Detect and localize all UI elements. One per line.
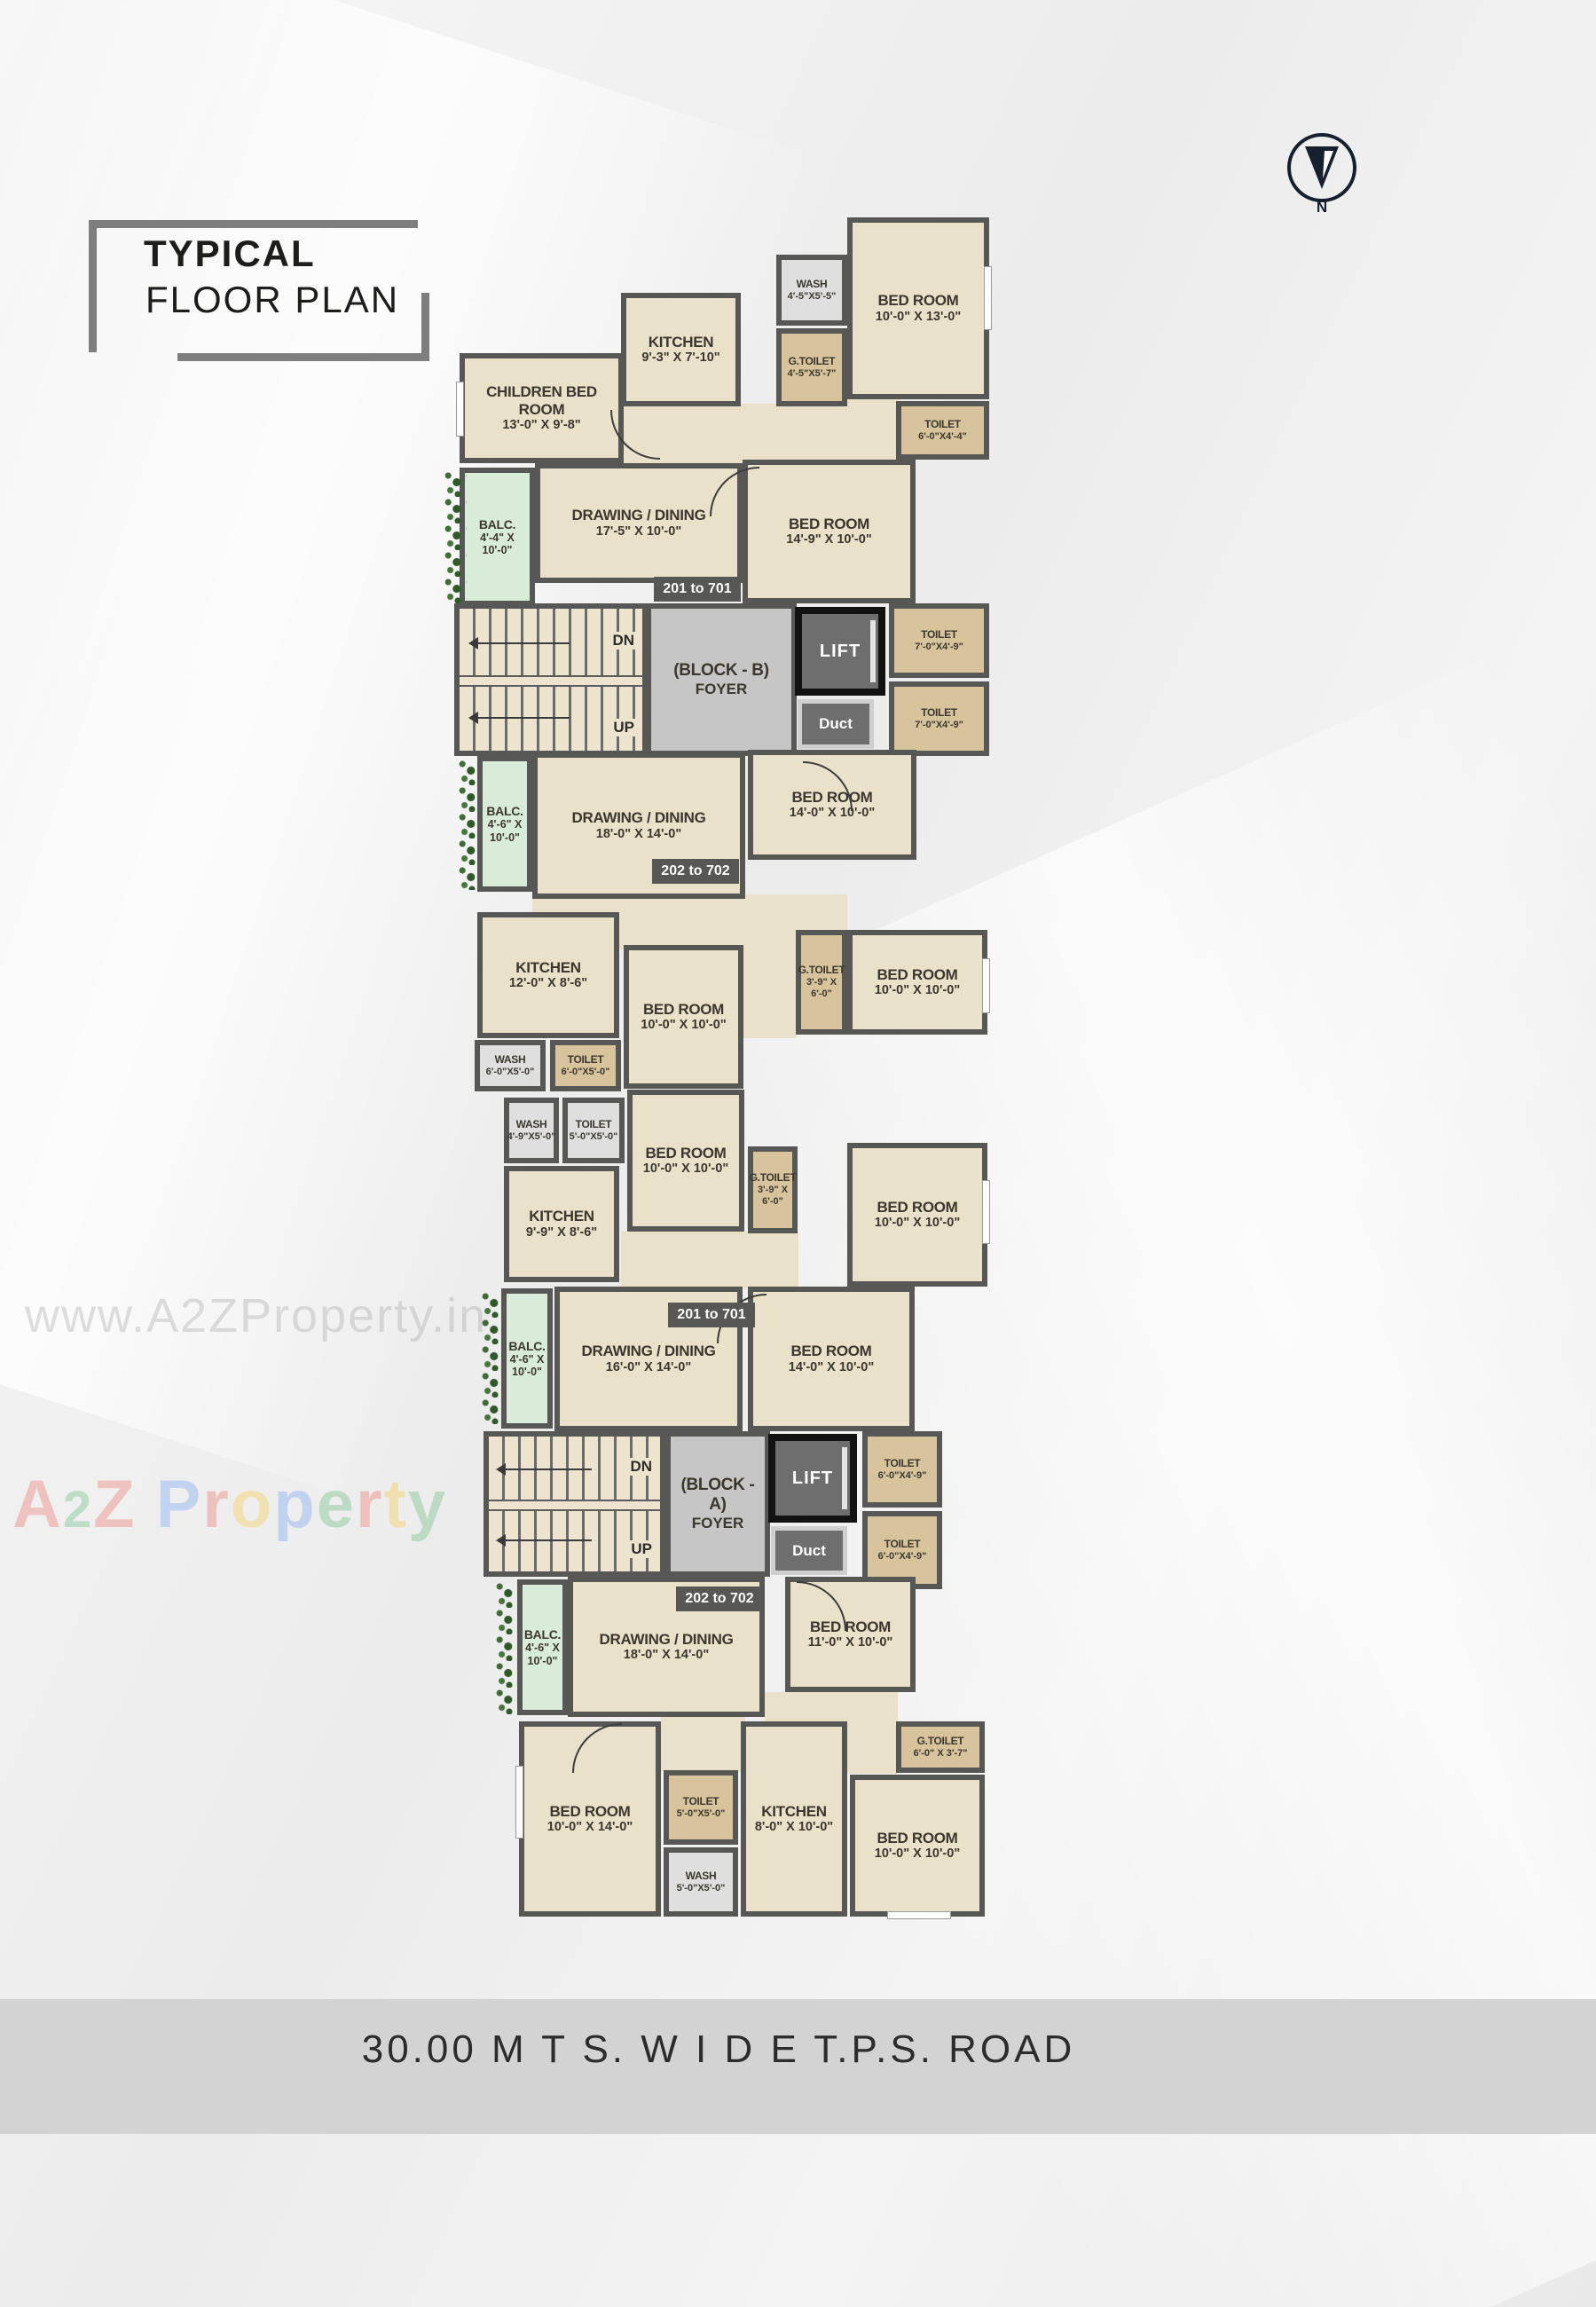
window-mark <box>982 1180 990 1244</box>
room-toilet-a1: TOILET5'-0"X5'-0" <box>562 1098 625 1163</box>
room-dims: 13'-0" X 9'-8" <box>465 418 618 433</box>
room-dims: 6'-0" X 3'-7" <box>914 1748 968 1760</box>
staircase-block-a: DN UP <box>484 1431 665 1577</box>
block-label: (BLOCK - A) <box>671 1476 765 1515</box>
room-dims: 4'-6" X 10'-0" <box>483 818 527 844</box>
road-band: 30.00 M T S. W I D E T.P.S. ROAD <box>0 1999 1596 2134</box>
room-name: TOILET <box>878 1458 927 1470</box>
room-name: TOILET <box>915 629 963 642</box>
room-dims: 10'-0" X 10'-0" <box>875 983 960 998</box>
stair-landing <box>460 675 642 687</box>
room-gtoilet-a2: G.TOILET6'-0" X 3'-7" <box>896 1721 985 1773</box>
lift-block-b: LIFT <box>795 607 885 696</box>
room-name: KITCHEN <box>526 1208 597 1225</box>
logo-letter: r <box>356 1466 384 1543</box>
room-name: TOILET <box>677 1796 726 1808</box>
room-dims: 12'-0" X 8'-6" <box>509 976 587 991</box>
room-name: BED ROOM <box>875 1199 960 1216</box>
room-name: BED ROOM <box>643 1145 728 1162</box>
window-mark <box>982 958 990 1013</box>
lift-label: LIFT <box>792 1468 833 1489</box>
window-mark <box>515 1766 523 1839</box>
hall-floor <box>661 1717 745 1772</box>
room-name: BED ROOM <box>786 516 871 533</box>
lift-block-a: LIFT <box>768 1434 857 1523</box>
room-name: BED ROOM <box>876 292 961 310</box>
hall-floor <box>621 1232 798 1288</box>
room-drawing-dining-b1: DRAWING / DINING17'-5" X 10'-0" <box>535 463 743 583</box>
logo-letter: P <box>156 1466 203 1543</box>
room-dims: 11'-0" X 10'-0" <box>808 1635 893 1650</box>
unit-range: 201 to 701 <box>677 1307 745 1323</box>
room-dims: 9'-9" X 8'-6" <box>526 1225 597 1240</box>
logo-letter: y <box>408 1466 447 1543</box>
duct-block-a: Duct <box>771 1526 847 1575</box>
room-dims: 4'-6" X 10'-0" <box>507 1353 547 1379</box>
room-dims: 3'-9" X 6'-0" <box>750 1185 797 1207</box>
room-name: DRAWING / DINING <box>581 1342 715 1360</box>
room-kitchen-a1: KITCHEN9'-9" X 8'-6" <box>504 1166 619 1282</box>
room-balcony-b2: BALC.4'-6" X 10'-0" <box>477 756 532 892</box>
lift-label: LIFT <box>820 642 861 662</box>
room-dims: 4'-5"X5'-5" <box>788 291 837 303</box>
room-name: BED ROOM <box>641 1001 726 1019</box>
room-name: WASH <box>677 1870 726 1883</box>
room-dims: 6'-0"X5'-0" <box>562 1067 610 1078</box>
page-title-line2: FLOOR PLAN <box>145 279 399 321</box>
room-dims: 4'-4" X 10'-0" <box>475 531 521 557</box>
room-name: KITCHEN <box>641 334 719 351</box>
svg-text:N: N <box>1317 199 1327 216</box>
room-name: TOILET <box>570 1119 618 1131</box>
staircase-block-b: DN UP <box>454 603 648 756</box>
stairs-down-label: DN <box>627 1458 655 1476</box>
watermark-logo: A2ZProperty <box>12 1466 447 1543</box>
logo-letter: Z <box>93 1466 136 1543</box>
room-dims: 17'-5" X 10'-0" <box>571 524 705 539</box>
room-name: BALC. <box>475 517 521 531</box>
plants <box>442 470 467 603</box>
stair-landing <box>489 1500 660 1511</box>
foyer-label: FOYER <box>673 681 769 698</box>
unit-range: 202 to 702 <box>661 863 729 879</box>
room-name: WASH <box>507 1119 556 1131</box>
room-name: G.TOILET <box>788 356 837 368</box>
unit-label-b-upper: 201 to 701 <box>654 577 741 602</box>
room-name: CHILDREN BED ROOM <box>465 383 618 418</box>
room-dims: 10'-0" X 10'-0" <box>875 1216 960 1231</box>
room-name: TOILET <box>915 707 963 720</box>
room-name: BED ROOM <box>547 1803 633 1821</box>
room-dims: 6'-0"X4'-9" <box>878 1551 927 1563</box>
room-bedroom-b2-right: BED ROOM10'-0" X 10'-0" <box>847 930 987 1035</box>
room-children-bedroom-b1: CHILDREN BED ROOM13'-0" X 9'-8" <box>460 353 624 463</box>
room-name: BALC. <box>483 804 527 818</box>
stairs-up-label: UP <box>610 719 637 736</box>
room-wash-b2: WASH6'-0"X5'-0" <box>475 1040 546 1091</box>
room-name: DRAWING / DINING <box>571 507 705 524</box>
room-dims: 8'-0" X 10'-0" <box>755 1820 833 1835</box>
room-balcony-a1: BALC.4'-6" X 10'-0" <box>501 1288 553 1429</box>
unit-label-a-lower: 202 to 702 <box>676 1587 763 1611</box>
room-dims: 5'-0"X5'-0" <box>677 1883 726 1894</box>
logo-letter: e <box>317 1466 356 1543</box>
room-wash-a2: WASH5'-0"X5'-0" <box>664 1847 738 1917</box>
room-bedroom-b1-top: BED ROOM10'-0" X 13'-0" <box>847 217 989 399</box>
logo-letter: o <box>231 1466 273 1543</box>
room-dims: 14'-0" X 10'-0" <box>789 1360 874 1375</box>
room-dims: 7'-0"X4'-9" <box>915 720 963 731</box>
unit-range: 201 to 701 <box>663 581 731 597</box>
room-dims: 10'-0" X 10'-0" <box>641 1018 726 1033</box>
room-dims: 18'-0" X 14'-0" <box>599 1648 733 1663</box>
room-toilet-core-a-1: TOILET6'-0"X4'-9" <box>862 1431 942 1508</box>
stair-arrow <box>478 642 570 644</box>
room-name: G.TOILET <box>750 1172 797 1185</box>
logo-letter: t <box>384 1466 408 1543</box>
window-mark <box>887 1911 951 1919</box>
room-name: BALC. <box>523 1627 562 1642</box>
hall-floor <box>847 399 899 463</box>
room-dims: 9'-3" X 7'-10" <box>641 350 719 366</box>
duct-label: Duct <box>792 1542 826 1560</box>
room-dims: 16'-0" X 14'-0" <box>581 1360 715 1375</box>
road-label: 30.00 M T S. W I D E T.P.S. ROAD <box>231 2027 1207 2072</box>
room-toilet-b2: TOILET6'-0"X5'-0" <box>550 1040 621 1091</box>
hall-floor <box>743 945 797 1038</box>
room-dims: 6'-0"X5'-0" <box>486 1067 535 1078</box>
room-toilet-b1: TOILET6'-0"X4'-4" <box>896 401 989 460</box>
plants <box>493 1581 518 1714</box>
room-name: BED ROOM <box>875 1830 960 1847</box>
room-name: BED ROOM <box>875 966 960 984</box>
foyer-block-a: (BLOCK - A)FOYER <box>665 1431 770 1577</box>
room-name: KITCHEN <box>509 959 587 977</box>
room-name: G.TOILET <box>798 965 845 977</box>
north-compass-icon: N <box>1282 129 1362 222</box>
room-bedroom-b1-mid: BED ROOM14'-9" X 10'-0" <box>743 460 916 603</box>
logo-letter: 2 <box>63 1480 93 1539</box>
logo-letter: p <box>273 1466 316 1543</box>
room-dims: 6'-0"X4'-9" <box>878 1470 927 1482</box>
room-dims: 10'-0" X 14'-0" <box>547 1820 633 1835</box>
room-name: TOILET <box>918 419 967 431</box>
room-dims: 4'-9"X5'-0" <box>507 1131 556 1143</box>
room-name: KITCHEN <box>755 1803 833 1821</box>
room-name: DRAWING / DINING <box>599 1631 733 1649</box>
room-kitchen-a2: KITCHEN8'-0" X 10'-0" <box>741 1721 847 1917</box>
room-dims: 5'-0"X5'-0" <box>677 1808 726 1820</box>
stair-arrow <box>478 717 570 719</box>
room-dims: 4'-6" X 10'-0" <box>523 1642 562 1667</box>
stairs-down-label: DN <box>609 632 637 650</box>
foyer-block-b: (BLOCK - B)FOYER <box>646 603 797 756</box>
unit-range: 202 to 702 <box>685 1591 753 1607</box>
room-gtoilet-b1: G.TOILET4'-5"X5'-7" <box>776 328 847 406</box>
floor-plan-page: TYPICAL FLOOR PLAN N CHILDREN BED ROOM13… <box>0 0 1596 2307</box>
room-toilet-a2: TOILET5'-0"X5'-0" <box>664 1770 738 1845</box>
block-label: (BLOCK - B) <box>673 661 769 681</box>
room-bedroom-a1-low: BED ROOM14'-0" X 10'-0" <box>748 1287 915 1431</box>
room-name: BED ROOM <box>789 1342 874 1360</box>
unit-label-b-lower: 202 to 702 <box>652 859 739 884</box>
room-dims: 10'-0" X 10'-0" <box>643 1161 728 1177</box>
room-name: WASH <box>486 1054 535 1067</box>
room-dims: 3'-9" X 6'-0" <box>798 977 845 999</box>
room-name: G.TOILET <box>914 1736 968 1748</box>
logo-letter: A <box>12 1466 63 1543</box>
stair-arrow <box>506 1539 592 1541</box>
room-kitchen-b2: KITCHEN12'-0" X 8'-6" <box>477 912 619 1038</box>
window-mark <box>456 382 464 437</box>
room-toilet-core-b-2: TOILET7'-0"X4'-9" <box>889 681 989 756</box>
unit-label-a-upper: 201 to 701 <box>668 1303 755 1327</box>
room-toilet-core-b-1: TOILET7'-0"X4'-9" <box>889 603 989 678</box>
room-bedroom-b2-mid: BED ROOM10'-0" X 10'-0" <box>624 945 743 1089</box>
room-name: BALC. <box>507 1339 547 1353</box>
room-wash-a1: WASH4'-9"X5'-0" <box>504 1098 559 1163</box>
room-name: TOILET <box>562 1054 610 1067</box>
room-name: DRAWING / DINING <box>571 809 705 827</box>
room-bedroom-a2-right: BED ROOM10'-0" X 10'-0" <box>850 1775 985 1917</box>
stair-arrow <box>506 1468 592 1470</box>
room-gtoilet-b2: G.TOILET3'-9" X 6'-0" <box>796 930 847 1035</box>
room-dims: 6'-0"X4'-4" <box>918 431 967 443</box>
watermark-url: www.A2ZProperty.in <box>25 1288 487 1343</box>
room-name: TOILET <box>878 1539 927 1551</box>
room-dims: 5'-0"X5'-0" <box>570 1131 618 1143</box>
page-title-line1: TYPICAL <box>144 232 316 275</box>
room-dims: 10'-0" X 13'-0" <box>876 310 961 325</box>
room-gtoilet-a1: G.TOILET3'-9" X 6'-0" <box>748 1146 798 1233</box>
room-wash-b1: WASH4'-5"X5'-5" <box>776 255 847 326</box>
plants <box>456 759 481 890</box>
foyer-label: FOYER <box>671 1515 765 1532</box>
room-dims: 18'-0" X 14'-0" <box>571 827 705 842</box>
title-block: TYPICAL FLOOR PLAN <box>89 215 435 357</box>
room-dims: 4'-5"X5'-7" <box>788 368 837 380</box>
room-kitchen-b1: KITCHEN9'-3" X 7'-10" <box>621 293 741 406</box>
logo-letter: r <box>202 1466 231 1543</box>
room-bedroom-a1-mid: BED ROOM10'-0" X 10'-0" <box>627 1090 744 1232</box>
room-bedroom-a1-right: BED ROOM10'-0" X 10'-0" <box>847 1143 987 1287</box>
room-dims: 14'-9" X 10'-0" <box>786 532 871 547</box>
window-mark <box>984 266 992 330</box>
room-dims: 10'-0" X 10'-0" <box>875 1846 960 1862</box>
room-balcony-a2: BALC.4'-6" X 10'-0" <box>517 1579 568 1715</box>
room-balcony-b1: BALC.4'-4" X 10'-0" <box>460 468 535 606</box>
room-dims: 7'-0"X4'-9" <box>915 642 963 653</box>
room-name: WASH <box>788 279 837 291</box>
duct-block-b: Duct <box>798 699 874 749</box>
stairs-up-label: UP <box>628 1540 655 1558</box>
duct-label: Duct <box>819 715 853 733</box>
